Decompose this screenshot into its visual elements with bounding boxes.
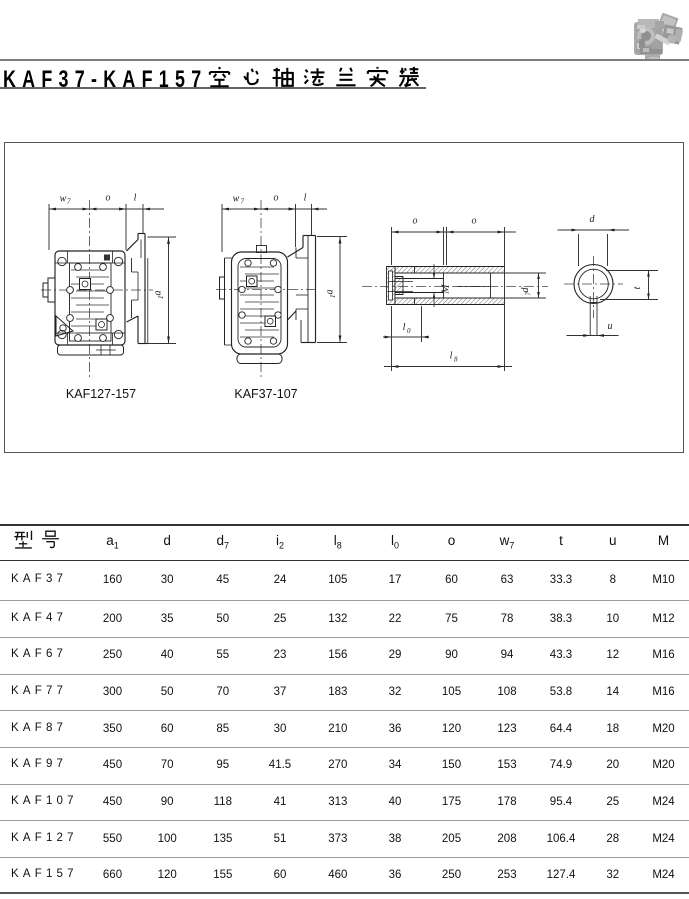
svg-text:u: u (608, 321, 613, 332)
svg-text:1: 1 (329, 295, 337, 299)
svg-text:o: o (472, 216, 477, 227)
svg-text:7: 7 (241, 198, 245, 206)
svg-text:M: M (440, 284, 452, 295)
svg-text:8: 8 (454, 356, 458, 364)
svg-text:o: o (274, 193, 279, 204)
svg-text:l: l (450, 351, 453, 362)
svg-text:l: l (134, 193, 137, 204)
svg-text:t: t (632, 286, 643, 289)
svg-text:KAF127-157: KAF127-157 (66, 387, 136, 401)
svg-text:7: 7 (67, 198, 71, 206)
svg-text:l: l (403, 322, 406, 333)
svg-text:l: l (304, 193, 307, 204)
svg-text:o: o (106, 193, 111, 204)
svg-text:w: w (60, 194, 67, 205)
svg-text:o: o (413, 216, 418, 227)
svg-text:7: 7 (525, 292, 533, 296)
svg-text:d: d (520, 287, 531, 293)
svg-text:w: w (233, 194, 240, 205)
svg-text:d: d (590, 214, 596, 225)
svg-text:1: 1 (157, 296, 165, 300)
svg-text:0: 0 (407, 327, 411, 335)
svg-text:KAF37-107: KAF37-107 (234, 387, 297, 401)
svg-text:a: a (153, 291, 164, 296)
svg-text:a: a (325, 290, 336, 295)
